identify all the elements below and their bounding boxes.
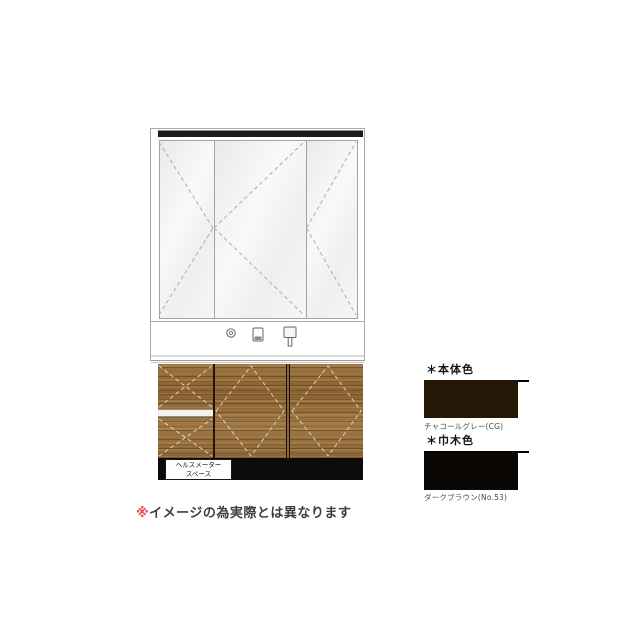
- mirror-cabinet: [150, 128, 365, 322]
- skirting-color-swatch: [424, 452, 518, 490]
- body-color-swatch: [424, 380, 518, 418]
- healthmeter-label-line2: スペース: [166, 470, 231, 479]
- skirting-color-caption: ダークブラウン(No.53): [424, 492, 507, 503]
- cabinet-divider-left: [213, 364, 215, 458]
- drawer-gap: [158, 409, 213, 417]
- kickboard: ヘルスメーター スペース: [158, 458, 363, 480]
- mirror-door-right: [306, 140, 358, 319]
- healthmeter-label-line1: ヘルスメーター: [166, 461, 231, 470]
- note-asterisk: ※: [136, 506, 149, 521]
- base-cabinet: [158, 364, 363, 458]
- body-color-heading: ＊本体色: [424, 361, 529, 382]
- skirting-color-heading: ＊巾木色: [424, 432, 529, 453]
- disclaimer-note: ※イメージの為実際とは異なります: [136, 502, 351, 521]
- product-image: ヘルスメーター スペース: [0, 0, 640, 640]
- mirror-light-trim: [158, 130, 363, 137]
- counter-top: [150, 322, 365, 361]
- body-color-caption: チャコールグレー(CG): [424, 421, 503, 432]
- healthmeter-space-label: ヘルスメーター スペース: [165, 459, 232, 480]
- note-text: イメージの為実際とは異なります: [149, 506, 351, 521]
- mirror-door-center: [214, 140, 307, 319]
- vanity-illustration: ヘルスメーター スペース: [150, 128, 365, 482]
- cabinet-divider-right: [286, 364, 290, 458]
- mirror-door-left: [159, 140, 215, 319]
